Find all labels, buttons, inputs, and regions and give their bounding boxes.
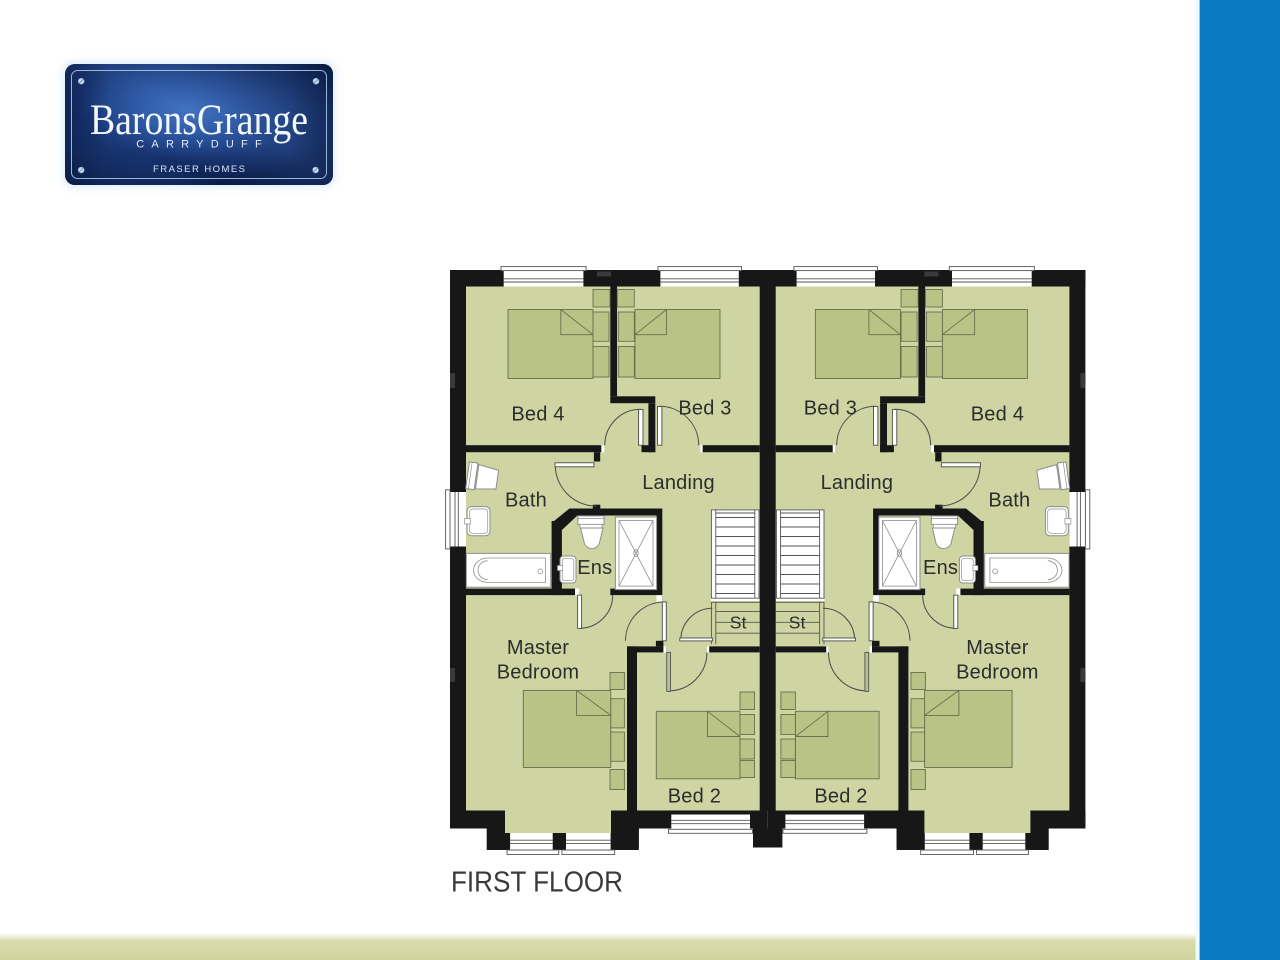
svg-text:Bedroom: Bedroom <box>497 661 580 683</box>
svg-text:Master: Master <box>507 637 569 659</box>
svg-text:Landing: Landing <box>821 472 894 494</box>
svg-text:Bath: Bath <box>988 490 1030 512</box>
svg-text:CARRYDUFF: CARRYDUFF <box>136 139 262 151</box>
svg-text:St: St <box>730 613 747 633</box>
svg-text:Bed 2: Bed 2 <box>668 786 721 808</box>
svg-text:Ens: Ens <box>577 557 612 579</box>
svg-text:FIRST FLOOR: FIRST FLOOR <box>451 867 623 899</box>
svg-text:Master: Master <box>966 637 1028 659</box>
svg-text:Bed 4: Bed 4 <box>971 404 1024 426</box>
svg-text:Landing: Landing <box>642 472 715 494</box>
svg-text:Bed 3: Bed 3 <box>678 398 731 420</box>
svg-text:Bed 4: Bed 4 <box>511 404 564 426</box>
svg-text:Ens: Ens <box>923 557 958 579</box>
svg-text:Bath: Bath <box>505 490 547 512</box>
svg-text:Bed 3: Bed 3 <box>804 398 857 420</box>
svg-text:Bedroom: Bedroom <box>956 661 1039 683</box>
svg-text:St: St <box>789 613 806 633</box>
svg-text:BaronsGrange: BaronsGrange <box>90 97 308 144</box>
svg-text:Bed 2: Bed 2 <box>814 786 867 808</box>
